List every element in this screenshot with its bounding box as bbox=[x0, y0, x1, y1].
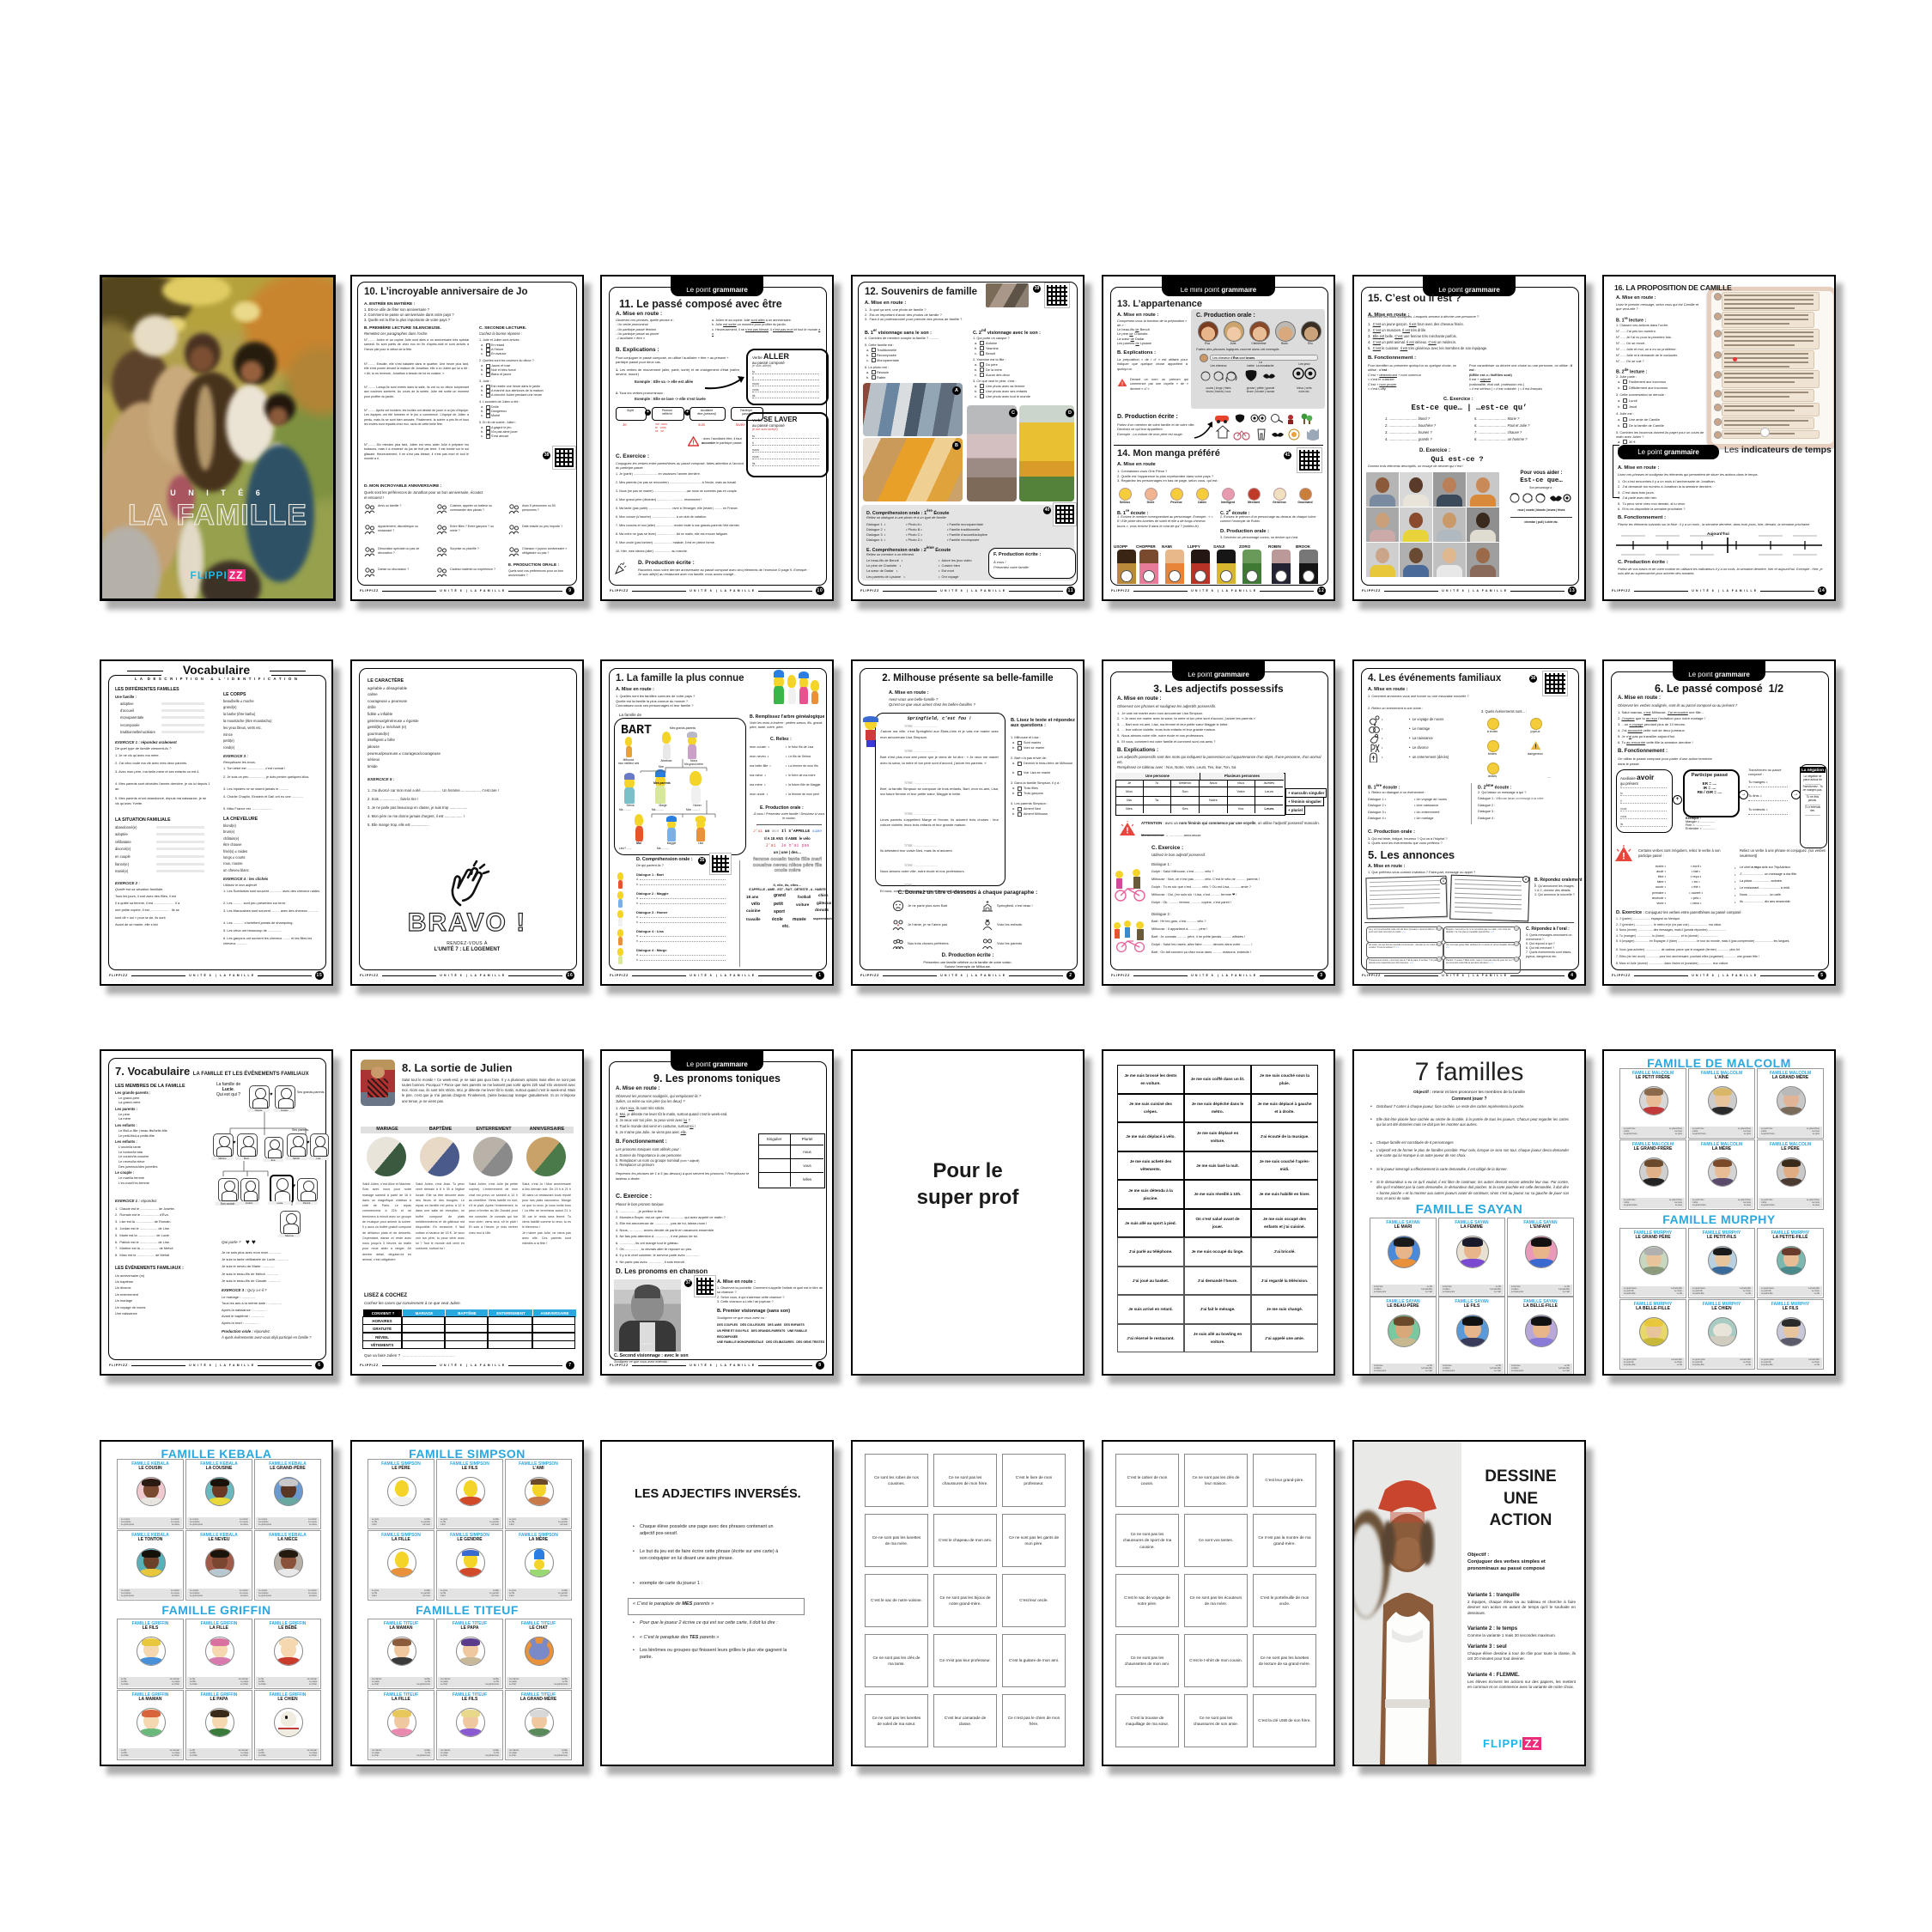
svg-text:!: ! bbox=[1534, 744, 1536, 750]
svg-text:!: ! bbox=[1126, 827, 1128, 836]
svg-text:!: ! bbox=[1121, 382, 1123, 387]
svg-text:!: ! bbox=[1622, 851, 1625, 861]
svg-text:!: ! bbox=[692, 440, 694, 447]
